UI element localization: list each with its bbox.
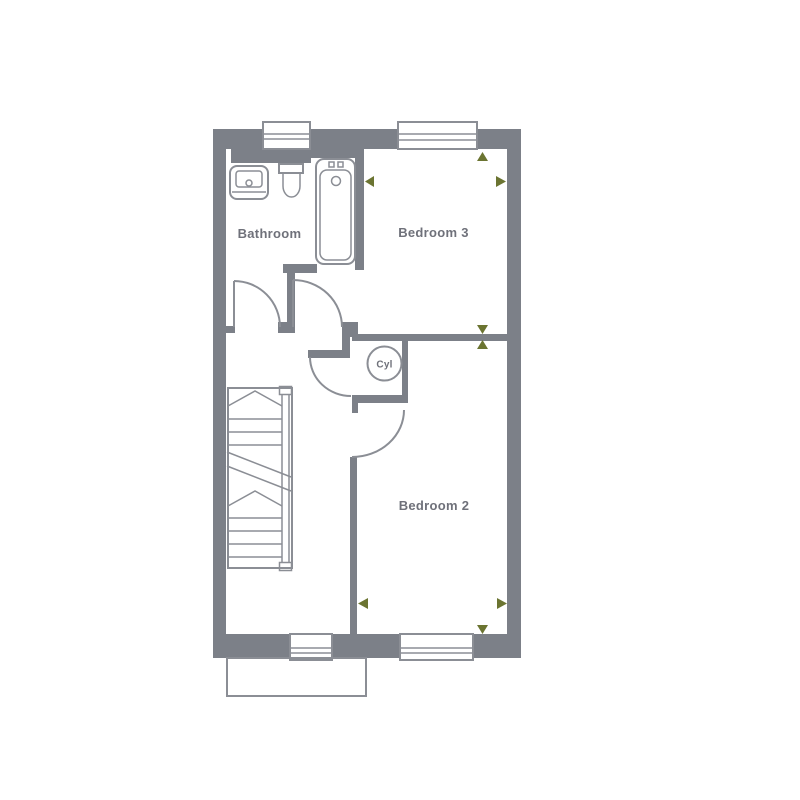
wall-bathroom-bedroom3 bbox=[355, 158, 364, 270]
stairs-direction-chevron-upper bbox=[228, 391, 282, 406]
window-bathroom bbox=[263, 122, 310, 149]
window-bedroom2 bbox=[400, 634, 473, 660]
floor-plan: Cyl Bathroom Bedroom 3 Bedroom 2 bbox=[0, 0, 800, 800]
stairs-handrail bbox=[280, 387, 292, 571]
bath-tap bbox=[329, 162, 334, 167]
wall-bath-header bbox=[311, 149, 364, 158]
cylinder-cupboard: Cyl bbox=[368, 347, 402, 381]
door-bedroom3 bbox=[293, 280, 342, 327]
stairs-treads bbox=[229, 419, 282, 557]
bathroom-label: Bathroom bbox=[238, 226, 302, 241]
wall-cupboard-south-stub bbox=[352, 403, 358, 413]
bath-tap bbox=[338, 162, 343, 167]
window-landing-south bbox=[290, 634, 332, 660]
stairs-newel-bottom bbox=[280, 563, 292, 571]
wall-cupboard-south bbox=[352, 395, 408, 403]
wall-bathroom-door-stub bbox=[215, 326, 235, 333]
marker-bed3-east-right-icon bbox=[496, 176, 506, 187]
marker-bed3-west-left-icon bbox=[365, 176, 374, 187]
windows bbox=[263, 122, 477, 660]
toilet bbox=[279, 164, 303, 197]
marker-divider-top-down-icon bbox=[477, 325, 488, 334]
stairs bbox=[227, 387, 292, 571]
porch-outline bbox=[227, 658, 366, 696]
door-bathroom bbox=[234, 281, 280, 327]
wall-bathroom-window-reveal bbox=[231, 149, 311, 163]
marker-bed2-east-right-icon bbox=[497, 598, 507, 609]
bedroom2-label: Bedroom 2 bbox=[399, 498, 470, 513]
stairs-direction-chevron-lower bbox=[228, 491, 282, 506]
bathroom-fixtures bbox=[230, 159, 355, 264]
wall-cupboard-west-upper bbox=[342, 337, 350, 350]
cylinder-label: Cyl bbox=[376, 360, 392, 371]
sink bbox=[230, 166, 268, 199]
marker-divider-bottom-up-icon bbox=[477, 340, 488, 349]
wall-cupboard-east bbox=[402, 341, 408, 403]
door-bedroom2 bbox=[352, 410, 404, 457]
marker-bed2-south-down-icon bbox=[477, 625, 488, 634]
marker-bed3-north-up-icon bbox=[477, 152, 488, 161]
wall-cupboard-west-bar bbox=[308, 350, 350, 358]
bathtub bbox=[316, 159, 355, 264]
wall-exterior-right bbox=[507, 129, 521, 658]
wall-landing-bedroom2 bbox=[350, 457, 357, 634]
window-bedroom3 bbox=[398, 122, 477, 149]
marker-bed2-west-left-icon bbox=[358, 598, 368, 609]
wall-bedroom-divider bbox=[352, 334, 507, 341]
bedroom3-label: Bedroom 3 bbox=[398, 225, 469, 240]
wall-exterior-left bbox=[213, 129, 226, 658]
wall-exterior-bottom bbox=[213, 634, 521, 658]
door-cylinder-cupboard bbox=[310, 357, 351, 396]
